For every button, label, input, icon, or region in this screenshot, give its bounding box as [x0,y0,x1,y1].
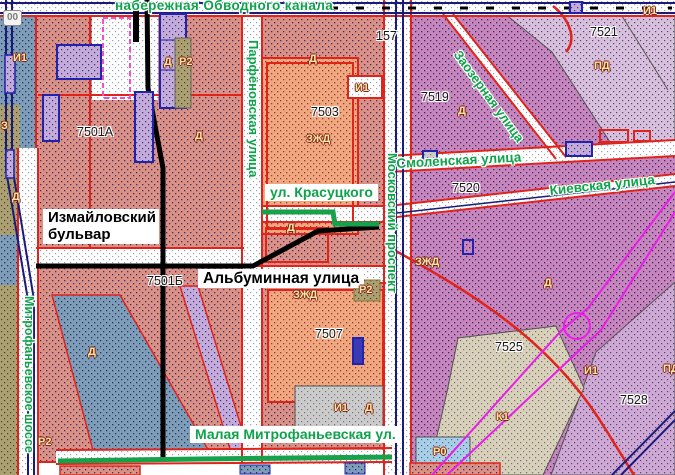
zone-code-i1: И1 [584,365,598,377]
zone-code-zzhd: ЗЖД [306,133,330,145]
zone-code-i1: И1 [643,5,657,17]
parcel-number-7501a: 7501А [77,125,113,139]
map-canvas[interactable]: набережная Обводного канала Парфёновская… [0,0,675,475]
zone-code-pd: ПД [594,60,610,72]
parcel-number-7507: 7507 [315,327,343,341]
parcel-number-7521: 7521 [590,25,618,39]
parcel-number-7519: 7519 [421,90,449,104]
parcel-number-7501b: 7501Б [147,274,183,288]
zone-code-i1: И1 [355,82,369,94]
parcel-number-7528: 7528 [620,393,648,407]
zone-code-d: Д [88,346,96,358]
kilometer-marker-00: 00 [3,10,22,26]
zone-code-i1: И1 [13,52,27,64]
zone-code-d: Д [544,277,552,289]
parcel-number-7520: 7520 [452,181,480,195]
zone-code-zzhd: ЗЖД [415,256,439,268]
zone-code-d: Д [458,105,466,117]
street-label-moskovsky-prospekt: Московский проспект [385,153,399,293]
zone-code-r0: Р0 [433,446,446,458]
zone-code-k1: К1 [496,411,509,423]
zone-code-d: Д [12,191,20,203]
zone-code-i1: И1 [334,402,348,414]
parcel-number-7525: 7525 [495,340,523,354]
zone-code-r2: Р2 [179,56,192,68]
zone-code-zzhd: ЗЖД [293,289,317,301]
zone-code-r2: Р2 [359,284,372,296]
street-label-albuminnaya: Альбуминная улица [198,269,364,288]
street-label-obvodny-canal: набережная Обводного канала [115,0,333,14]
zone-code-r2: Р2 [38,436,51,448]
zone-code-d: Д [164,56,172,68]
zone-code-pd: ПД [663,363,675,375]
street-label-parfyonovskaya: Парфёновская улица [246,40,260,177]
zone-code-d: Д [365,402,373,414]
street-label-malaya-mitrofanyevskaya: Малая Митрофаньевская ул. [190,426,401,443]
parcel-number-7503: 7503 [311,105,339,119]
zone-code-d: Д [195,130,203,142]
street-label-mitrofanyevskoe-shosse: Митрофаньевское шоссе [21,296,35,453]
street-label-krasutskogo: ул. Красуцкого [265,184,378,201]
zone-code-d: Д [287,222,295,234]
address-number-157: 157 [376,29,397,43]
zone-code-z: З [1,120,8,132]
zone-code-d: Д [309,53,317,65]
street-label-izmaylovsky-bulvar: Измайловский бульвар [43,209,159,244]
